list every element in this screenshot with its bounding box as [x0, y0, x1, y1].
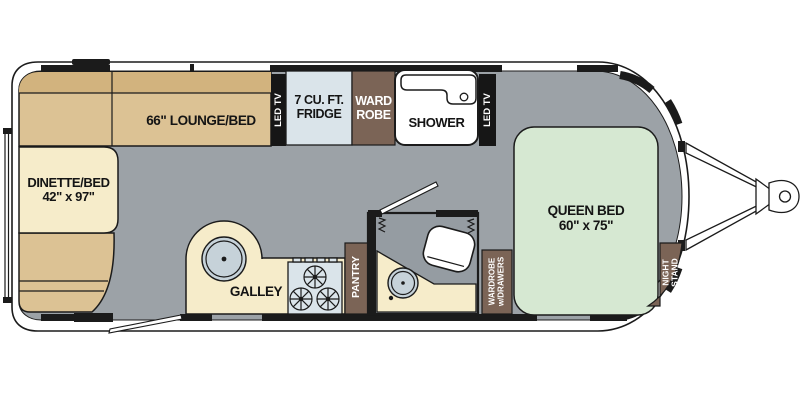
hitch	[678, 141, 799, 251]
fridge-label: 7 CU. FT. FRIDGE	[286, 73, 352, 143]
hitch-pad	[678, 141, 685, 152]
wardrobe-drawers-label-line2: w/DRAWERS	[497, 257, 505, 306]
bathroom-wall	[368, 210, 382, 217]
led-tv-left-label-text: LED TV	[274, 93, 284, 127]
awning-marker	[72, 59, 110, 65]
dinette-seat-shape	[19, 233, 114, 312]
stove-knob	[293, 258, 301, 262]
wall-segment	[41, 314, 75, 321]
hitch-coupler-socket	[780, 191, 791, 202]
bathroom-sink-drain	[401, 281, 405, 285]
fridge-label-line2: FRIDGE	[297, 108, 342, 122]
queen-bed-label-size: 60" x 75"	[559, 219, 613, 234]
wall-segment	[180, 314, 212, 321]
wardrobe-front-label: WARD ROBE	[352, 73, 395, 145]
pantry-label-text: PANTRY	[351, 256, 363, 298]
lounge-seat	[19, 72, 271, 146]
dinette-label-size: 42" x 97"	[42, 190, 94, 204]
shower-drain	[460, 93, 468, 101]
bumper-cap-top	[3, 128, 12, 134]
floorplan: DINETTE/BED 42" x 97" 66" LOUNGE/BED LED…	[0, 0, 800, 400]
stove-knob	[305, 258, 313, 262]
led-tv-right-label: LED TV	[481, 80, 495, 140]
stove-knob	[317, 258, 325, 262]
rear-bumper	[3, 128, 12, 303]
bathroom-wall	[436, 210, 478, 217]
bathroom-faucet	[389, 296, 393, 300]
wardrobe-front-label-line2: ROBE	[356, 109, 391, 123]
lounge-label-text: 66" LOUNGE/BED	[146, 114, 256, 129]
floorplan-drawing	[0, 0, 800, 400]
stove-burner	[317, 288, 339, 310]
wardrobe-front-label-line1: WARD	[355, 95, 392, 109]
wardrobe-drawers-label: WARDROBE w/DRAWERS	[488, 252, 507, 312]
dinette-label-name: DINETTE/BED	[27, 176, 109, 190]
led-tv-right-label-text: LED TV	[483, 93, 493, 127]
bumper-cap-bottom	[3, 297, 12, 303]
lounge-backrest	[19, 72, 271, 93]
stove-knob	[329, 258, 337, 262]
wall-segment	[41, 65, 110, 72]
fridge-label-line1: 7 CU. FT.	[294, 94, 343, 108]
galley-label: GALLEY	[200, 283, 312, 301]
queen-bed-label: QUEEN BED 60" x 75"	[514, 196, 658, 242]
bathroom-wall	[368, 213, 376, 314]
queen-bed-label-name: QUEEN BED	[548, 204, 625, 219]
dinette-label: DINETTE/BED 42" x 97"	[19, 150, 118, 230]
dinette-seat-bottom	[19, 233, 114, 312]
galley-sink-drain	[222, 257, 227, 262]
shower-label-text: SHOWER	[408, 116, 464, 130]
lounge-label: 66" LOUNGE/BED	[126, 110, 276, 132]
galley-label-text: GALLEY	[230, 285, 282, 300]
entry-step	[74, 313, 113, 322]
pantry-label: PANTRY	[349, 244, 365, 310]
night-stand-label: NIGHT STAND	[660, 247, 681, 299]
night-stand-label-line2: STAND	[670, 258, 679, 287]
led-tv-left-label: LED TV	[272, 80, 286, 140]
shower-label: SHOWER	[395, 110, 478, 136]
wall-segment	[577, 65, 618, 72]
